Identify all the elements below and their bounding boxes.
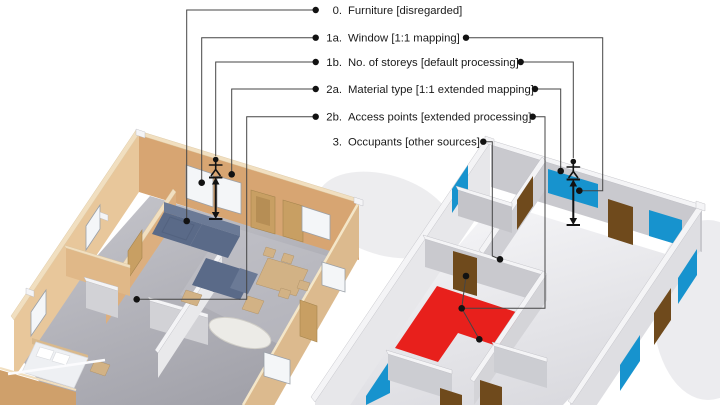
legend-num-1b: 1b.	[326, 57, 342, 69]
legend-label-2a: Material type [1:1 extended mapping]	[348, 84, 534, 96]
right-door-ne	[608, 199, 633, 245]
legend-bullet-right-2a	[532, 86, 538, 92]
legend-num-1a: 1a.	[326, 33, 342, 45]
callout-line-left-material	[232, 89, 316, 174]
left-floor-plan	[0, 129, 363, 405]
legend-num-2a: 2a.	[326, 84, 342, 96]
legend-bullet-right-2b	[530, 114, 536, 120]
anchor-dot-left-access	[133, 296, 140, 303]
legend: 0. Furniture [disregarded] 1a. Window [1…	[313, 5, 539, 149]
legend-label-1b: No. of storeys [default processing]	[348, 57, 519, 69]
legend-bullet-right-3	[480, 139, 486, 145]
left-door-ne-1-panel	[256, 196, 270, 226]
legend-bullet-left-1b	[313, 59, 319, 65]
legend-label-0: Furniture [disregarded]	[348, 5, 462, 17]
legend-num-0: 0.	[333, 5, 342, 17]
legend-label-2b: Access points [extended processing]	[348, 112, 531, 124]
legend-label-1a: Window [1:1 mapping]	[348, 33, 460, 45]
figure-canvas: 0. Furniture [disregarded] 1a. Window [1…	[0, 0, 720, 405]
legend-bullet-left-2a	[313, 86, 319, 92]
callout-line-left-storeys	[216, 62, 316, 156]
anchor-dot-furniture	[183, 218, 190, 225]
callout-line-right-storeys	[521, 62, 574, 158]
legend-num-3: 3.	[333, 137, 342, 149]
legend-bullet-left-2b	[313, 114, 319, 120]
legend-bullet-right-1a	[463, 35, 469, 41]
anchor-dot-left-window	[198, 179, 205, 186]
left-window-ne-b	[217, 176, 241, 214]
legend-bullet-left-1a	[313, 35, 319, 41]
legend-num-2b: 2b.	[326, 112, 342, 124]
anchor-dot-access-doorway	[476, 336, 483, 343]
diagram-svg: 0. Furniture [disregarded] 1a. Window [1…	[0, 0, 720, 405]
anchor-dot-occupants	[497, 256, 504, 263]
legend-label-3: Occupants [other sources]	[348, 137, 480, 149]
anchor-dot-right-window	[576, 187, 583, 194]
legend-bullet-right-1b	[518, 59, 524, 65]
anchor-dot-red-zone	[458, 305, 465, 312]
left-door-ne-2	[283, 200, 303, 242]
left-door-se	[300, 300, 317, 342]
anchor-dot-access-door	[463, 273, 470, 280]
anchor-dot-left-material	[228, 171, 235, 178]
legend-bullet-left-0	[313, 7, 319, 13]
anchor-dot-right-material	[557, 168, 564, 175]
